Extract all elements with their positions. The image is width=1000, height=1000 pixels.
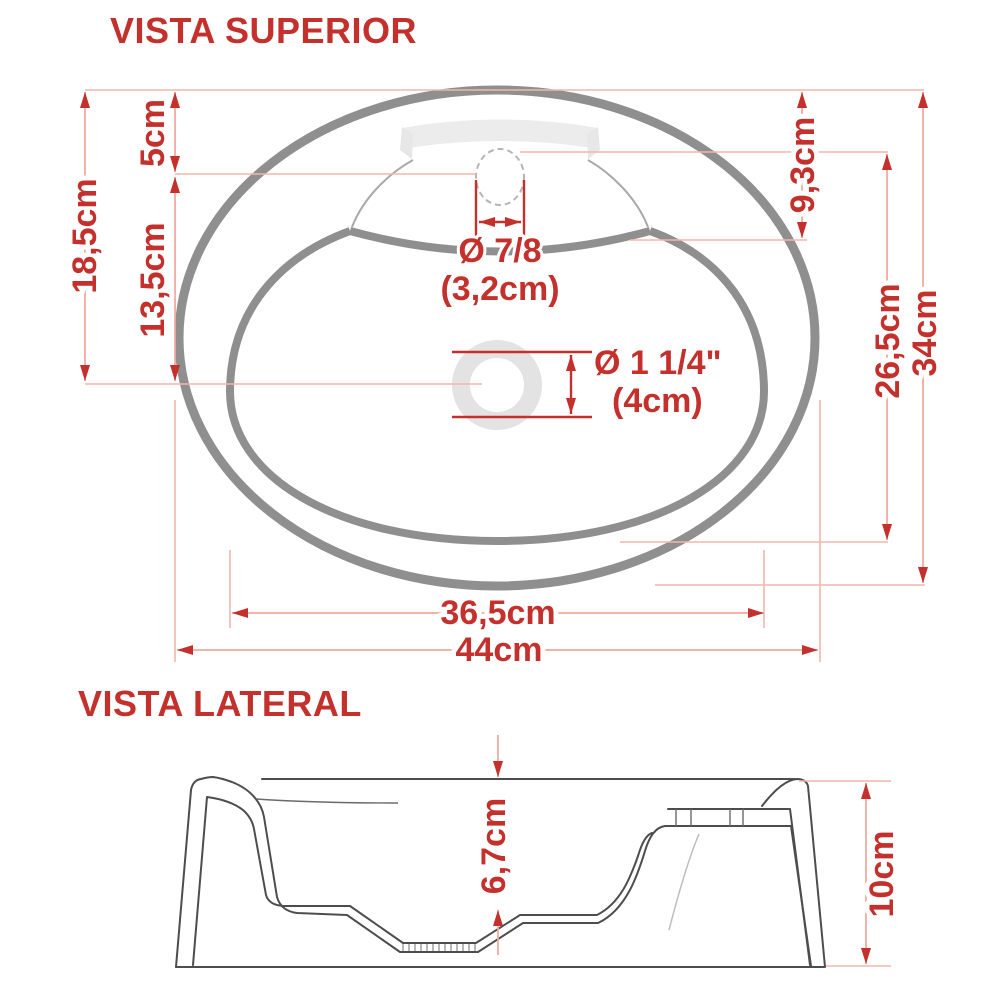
dim-label-44: 44cm — [456, 631, 543, 669]
dim-label-9-3: 9,3cm — [784, 117, 822, 213]
side-view-title: VISTA LATERAL — [78, 683, 362, 724]
faucet-hole-section-lines — [676, 809, 743, 826]
faucet-deck-band — [402, 120, 598, 150]
top-view-drawing: VISTA SUPERIOR 18,5cm 5cm 13,5cm 9,3cm 2… — [66, 10, 944, 669]
side-view-drawing: VISTA LATERAL 6,7cm 10cm — [78, 683, 901, 967]
deck-edge-right-wing — [588, 160, 648, 227]
faucet-diameter-cm-label: (3,2cm) — [440, 270, 559, 308]
deck-edge-left-wing — [352, 160, 413, 227]
profile-inner-rim-line — [256, 799, 398, 803]
profile-inner-wall — [193, 797, 652, 965]
faucet-diameter-label: Ø 7/8 — [458, 232, 541, 270]
dim-label-18-5: 18,5cm — [66, 178, 104, 293]
dim-label-10: 10cm — [863, 831, 901, 918]
technical-drawing-page: VISTA SUPERIOR 18,5cm 5cm 13,5cm 9,3cm 2… — [0, 0, 1000, 1000]
drain-diameter-cm-label: (4cm) — [612, 382, 703, 420]
dim-label-34: 34cm — [906, 290, 944, 377]
dim-label-6-7: 6,7cm — [475, 798, 513, 894]
bowl-hidden-edge — [669, 834, 699, 930]
drain-hole-ring — [461, 349, 533, 421]
drain-diameter-label: Ø 1 1/4" — [594, 344, 722, 382]
faucet-hole — [476, 149, 524, 205]
dim-label-13-5: 13,5cm — [134, 222, 172, 337]
top-view-title: VISTA SUPERIOR — [110, 10, 417, 51]
dim-label-36-5: 36,5cm — [440, 594, 555, 632]
drain-section-hatch — [403, 944, 475, 951]
dim-label-26-5: 26,5cm — [869, 283, 907, 398]
profile-right-horn — [762, 779, 825, 967]
side-view-dimension-lines — [498, 735, 891, 966]
sink-dimension-diagram: VISTA SUPERIOR 18,5cm 5cm 13,5cm 9,3cm 2… — [0, 0, 1000, 1000]
dim-label-5: 5cm — [134, 99, 172, 167]
profile-right-inner-wall — [790, 809, 810, 965]
